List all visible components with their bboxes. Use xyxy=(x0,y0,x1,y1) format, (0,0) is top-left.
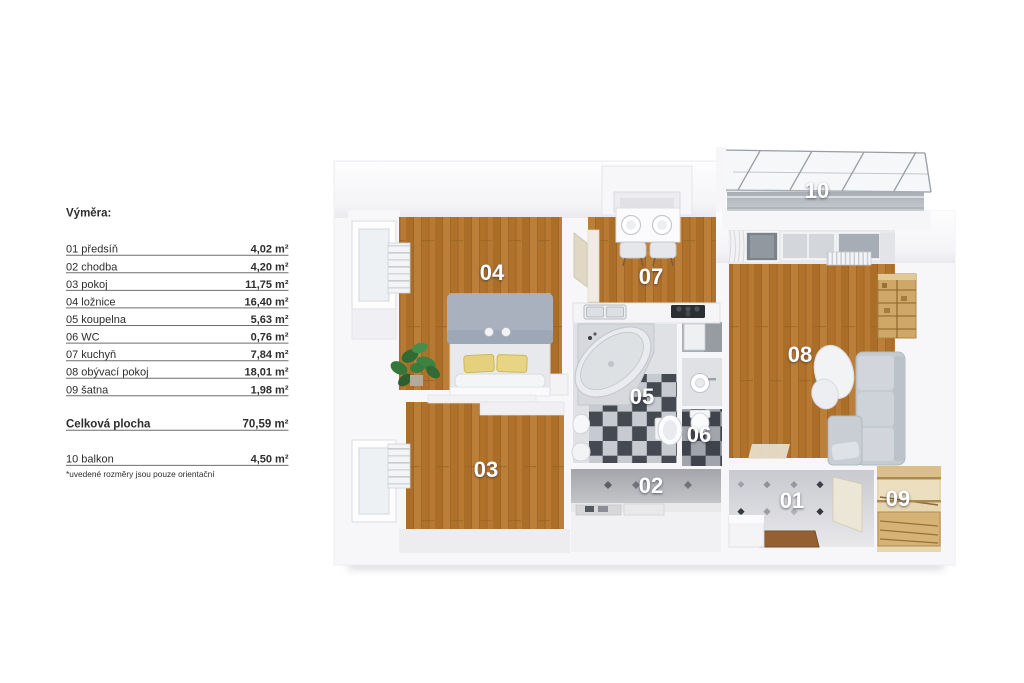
svg-text:4,02 m²: 4,02 m² xyxy=(251,244,289,256)
svg-text:4,50 m²: 4,50 m² xyxy=(251,453,289,465)
svg-text:01 předsíň: 01 předsíň xyxy=(66,244,118,256)
svg-text:Výměra:: Výměra: xyxy=(66,208,111,220)
svg-text:08: 08 xyxy=(788,342,812,367)
svg-text:06: 06 xyxy=(687,422,711,447)
svg-text:Celková plocha: Celková plocha xyxy=(66,418,151,430)
svg-text:07 kuchyň: 07 kuchyň xyxy=(66,349,116,361)
svg-text:*uvedené rozměry jsou pouze or: *uvedené rozměry jsou pouze orientační xyxy=(66,469,215,479)
svg-text:02: 02 xyxy=(639,473,663,498)
svg-text:08 obývací pokoj: 08 obývací pokoj xyxy=(66,367,149,379)
svg-text:03 pokoj: 03 pokoj xyxy=(66,279,108,291)
svg-text:09 šatna: 09 šatna xyxy=(66,384,109,396)
svg-text:4,20 m²: 4,20 m² xyxy=(251,261,289,273)
svg-text:70,59 m²: 70,59 m² xyxy=(242,418,288,430)
svg-text:1,98 m²: 1,98 m² xyxy=(251,384,289,396)
svg-text:05 koupelna: 05 koupelna xyxy=(66,314,127,326)
svg-text:01: 01 xyxy=(780,488,804,513)
svg-text:5,63 m²: 5,63 m² xyxy=(251,314,289,326)
svg-text:10 balkon: 10 balkon xyxy=(66,453,114,465)
svg-text:04: 04 xyxy=(480,260,505,285)
svg-text:09: 09 xyxy=(886,486,910,511)
svg-text:0,76 m²: 0,76 m² xyxy=(251,332,289,344)
svg-text:11,75 m²: 11,75 m² xyxy=(245,279,289,291)
svg-text:7,84 m²: 7,84 m² xyxy=(251,349,289,361)
svg-text:02 chodba: 02 chodba xyxy=(66,261,118,273)
svg-text:04 ložnice: 04 ložnice xyxy=(66,296,116,308)
svg-text:16,40 m²: 16,40 m² xyxy=(244,296,288,308)
svg-text:18,01 m²: 18,01 m² xyxy=(244,367,288,379)
svg-text:05: 05 xyxy=(630,384,654,409)
svg-text:03: 03 xyxy=(474,457,498,482)
svg-text:10: 10 xyxy=(805,178,829,203)
svg-text:07: 07 xyxy=(639,264,663,289)
svg-text:06 WC: 06 WC xyxy=(66,332,100,344)
